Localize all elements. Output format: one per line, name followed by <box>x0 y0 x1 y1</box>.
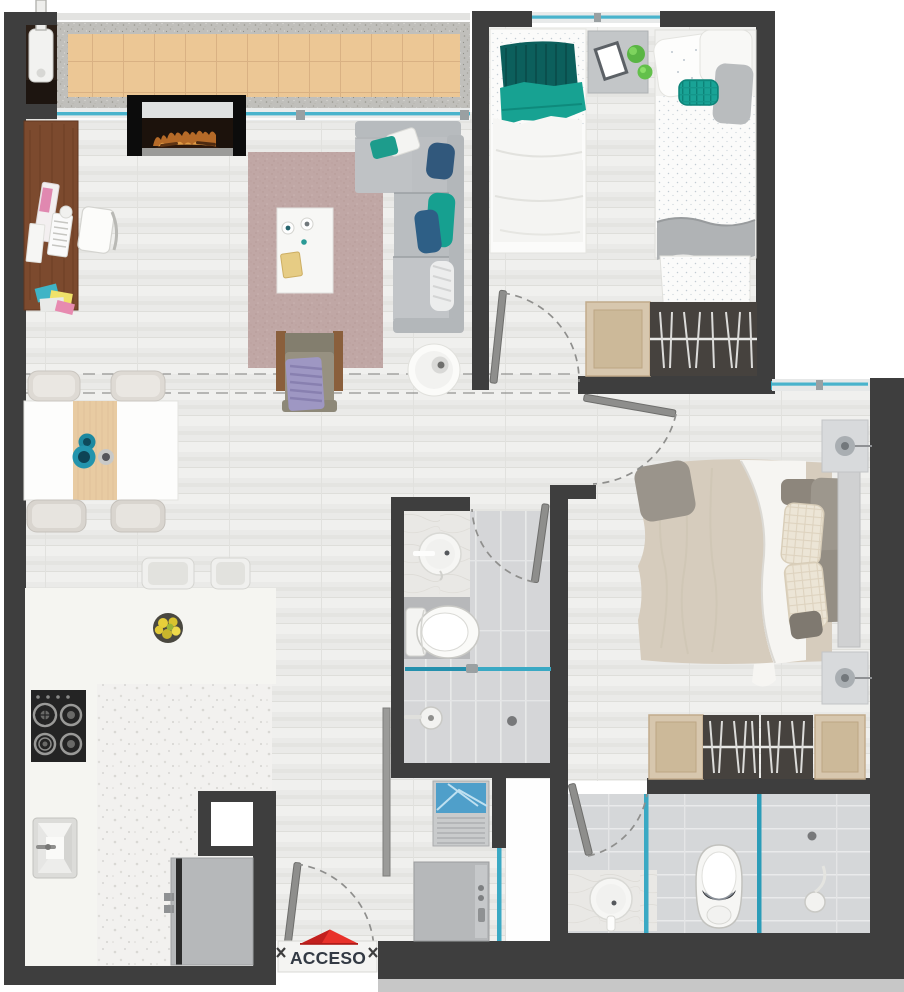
svg-text:ACCESO: ACCESO <box>290 948 366 968</box>
